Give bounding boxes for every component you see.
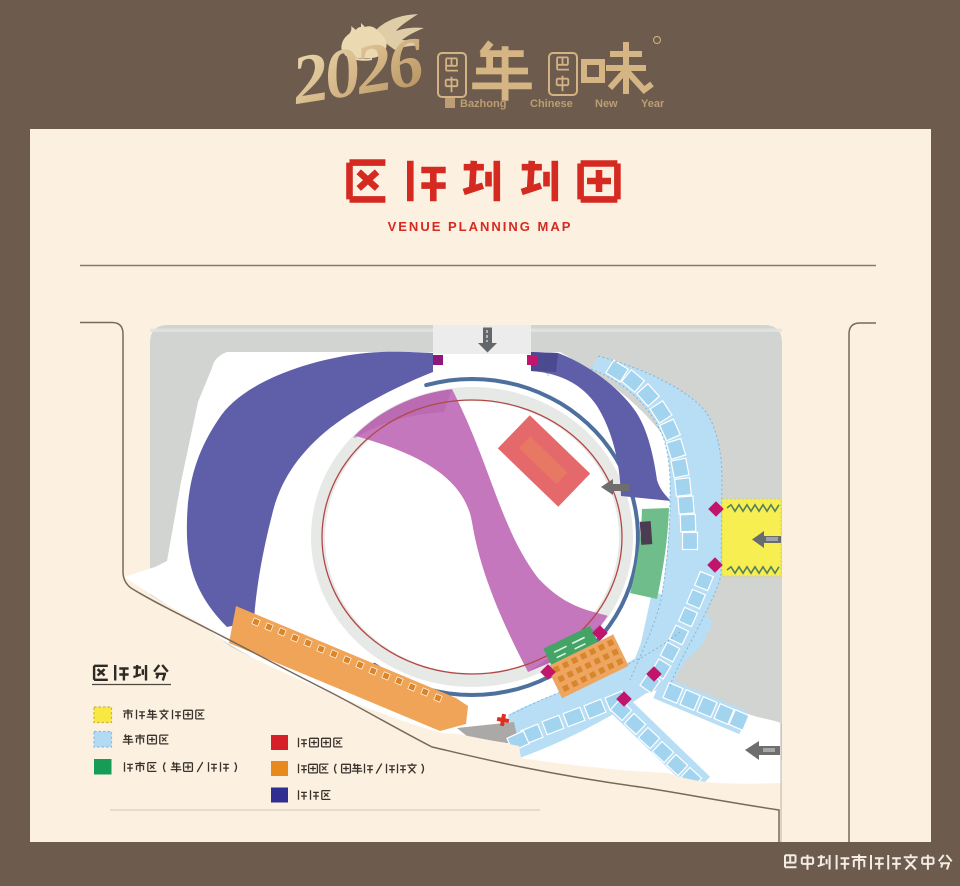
svg-text:New: New: [595, 98, 618, 110]
svg-text:Chinese: Chinese: [530, 98, 573, 110]
svg-text:Year: Year: [641, 98, 665, 110]
svg-text:Bazhong: Bazhong: [460, 98, 506, 110]
svg-text:VENUE PLANNING MAP: VENUE PLANNING MAP: [388, 219, 573, 234]
